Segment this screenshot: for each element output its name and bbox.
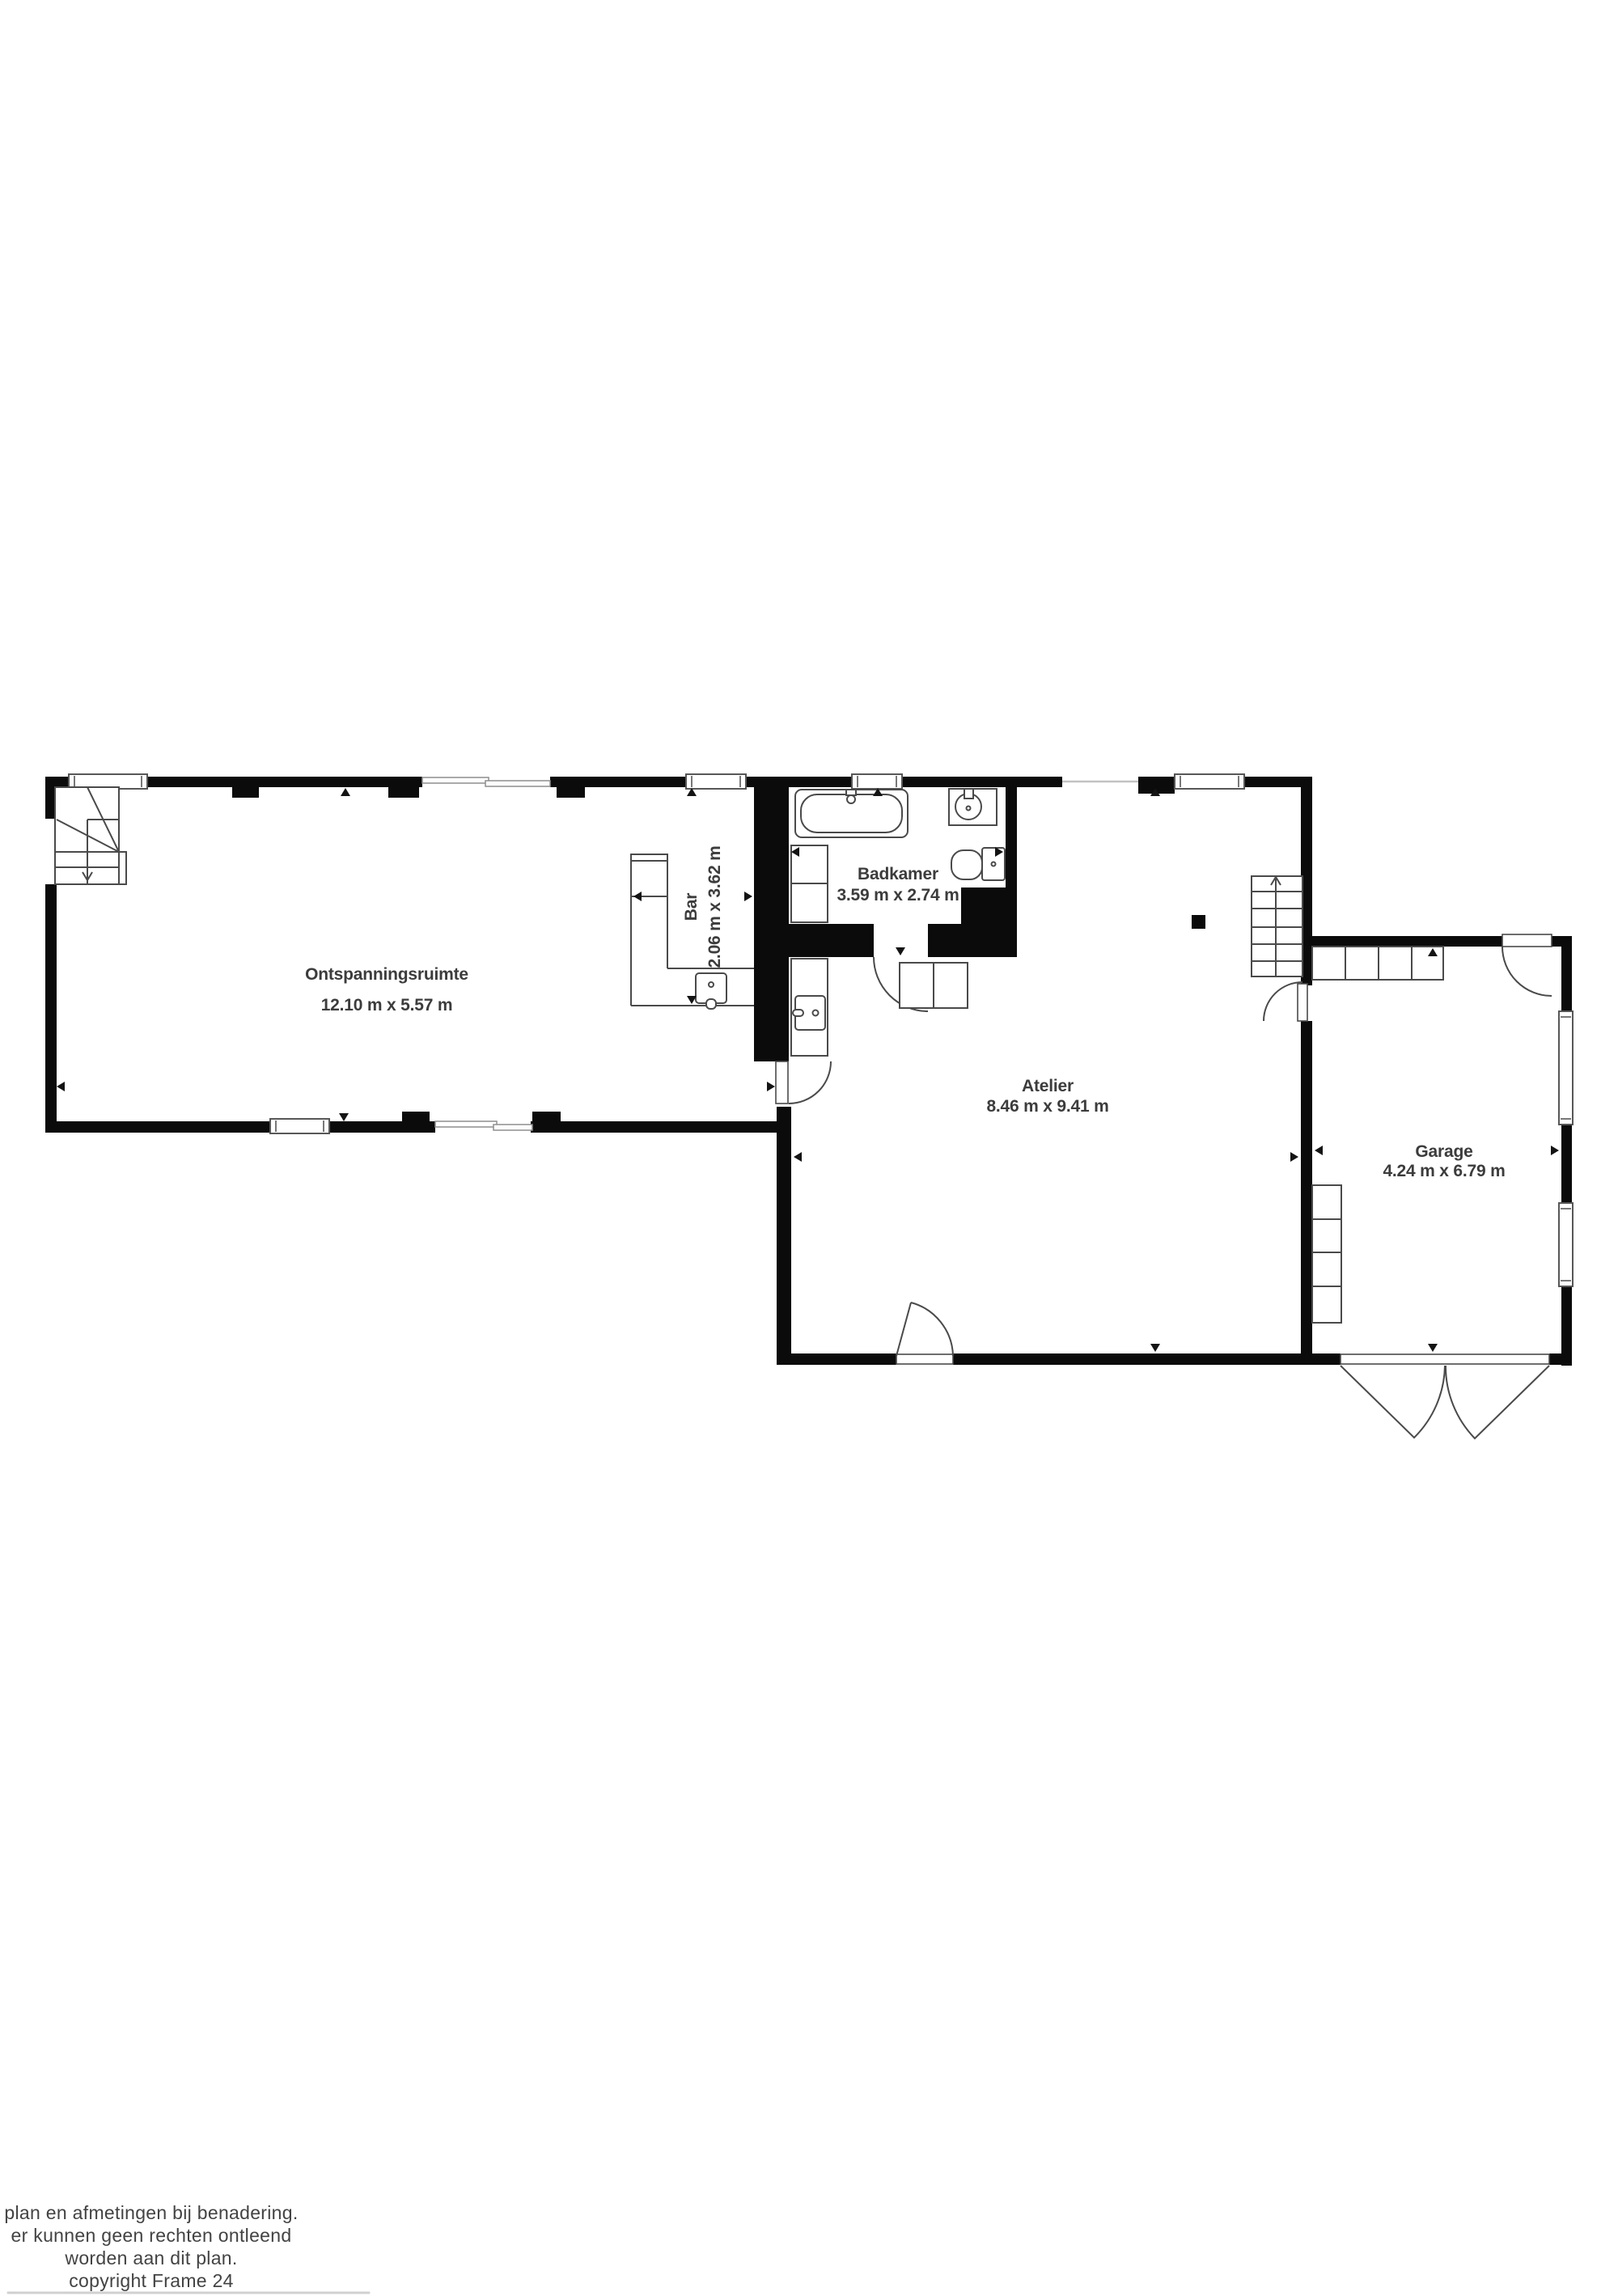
room-dims-bar: 2.06 m x 3.62 m <box>705 845 724 968</box>
wall-segment <box>1561 1125 1572 1203</box>
toilet-bowl <box>951 850 982 879</box>
wall-segment <box>953 1353 1302 1365</box>
dim-arrow-down <box>1150 1344 1160 1352</box>
disclaimer-line-2: er kunnen geen rechten ontleend <box>11 2225 292 2246</box>
bathtub-faucet <box>846 790 856 795</box>
staircase-straight <box>1252 876 1302 976</box>
window <box>1175 774 1244 789</box>
wall-segment <box>1006 787 1017 887</box>
dim-arrow-right <box>1551 1146 1559 1155</box>
disclaimer-line-3: worden aan dit plan. <box>64 2247 237 2268</box>
wall-segment <box>789 777 852 787</box>
wall-pillar-stub <box>557 787 585 798</box>
sliding-glass <box>422 777 489 783</box>
wall-segment <box>1302 1353 1341 1365</box>
wall-pillar-stub <box>388 787 419 798</box>
room-dims-garage: 4.24 m x 6.79 m <box>1383 1162 1505 1180</box>
room-label-bar: Bar <box>682 893 701 921</box>
room-labels: Ontspanningsruimte 12.10 m x 5.57 m Bar … <box>305 845 1505 1180</box>
door-swing-arc <box>911 1303 953 1356</box>
wall-segment <box>45 884 57 1133</box>
wall-segment <box>789 924 874 957</box>
room-label-ontspanningsruimte: Ontspanningsruimte <box>305 965 468 984</box>
sliding-glass <box>435 1121 497 1127</box>
wall-segment <box>754 786 789 1061</box>
floorplan-page: Ontspanningsruimte 12.10 m x 5.57 m Bar … <box>0 0 1618 2296</box>
wall-segment <box>550 777 686 787</box>
floorplan-svg: Ontspanningsruimte 12.10 m x 5.57 m Bar … <box>0 0 1618 2296</box>
shower-cabinet <box>791 845 828 922</box>
dim-arrow-left <box>57 1082 65 1091</box>
door-leaf-line <box>896 1303 911 1356</box>
kitchen-counter <box>791 959 828 1056</box>
door-leaf <box>896 1354 953 1364</box>
dim-arrow-up <box>341 788 350 796</box>
bathtub <box>795 790 908 837</box>
wall-segment <box>961 887 1017 924</box>
door-leaf <box>1502 934 1552 947</box>
wall-segment <box>781 1353 896 1365</box>
door-swing-arc <box>1264 982 1302 1021</box>
door-swing-arc <box>789 1061 831 1104</box>
dim-arrow-right <box>744 892 752 901</box>
dim-arrow-left <box>794 1152 802 1162</box>
wall-segment <box>531 1121 791 1133</box>
door-leaf <box>776 1061 788 1104</box>
dim-arrow-left <box>1315 1146 1323 1155</box>
pillar <box>1192 915 1205 929</box>
wall-pillar-stub <box>232 787 259 798</box>
garage-cabinets-left <box>1312 1185 1341 1323</box>
kitchen-sink-faucet <box>793 1010 803 1016</box>
door-leaf <box>1298 984 1307 1021</box>
wall-segment <box>329 1121 435 1133</box>
garage-door-band <box>1341 1354 1549 1364</box>
garage-door-right-leaf <box>1446 1366 1549 1438</box>
wall-pillar-stub <box>532 1112 561 1121</box>
wall-segment <box>777 1107 791 1365</box>
wall-segment <box>1561 936 1572 1011</box>
sliding-glass <box>493 1125 532 1130</box>
window <box>270 1119 329 1133</box>
wall-segment <box>147 777 422 787</box>
room-label-atelier: Atelier <box>1022 1077 1074 1095</box>
disclaimer-line-4: copyright Frame 24 <box>69 2270 234 2291</box>
wall-segment <box>1312 936 1502 947</box>
dim-arrow-down <box>896 947 905 955</box>
room-label-garage: Garage <box>1415 1142 1472 1161</box>
garage-door-left-leaf <box>1341 1366 1445 1438</box>
stairs-outline <box>119 852 126 884</box>
staircase-winder <box>55 787 126 884</box>
wall-segment <box>1549 1353 1572 1365</box>
wall-segment <box>928 924 1017 957</box>
sink-faucet <box>964 789 973 799</box>
cabinet-outline <box>1312 1185 1341 1323</box>
door-swing-arc <box>1502 947 1552 996</box>
sliding-glass <box>485 781 550 786</box>
window <box>852 774 902 789</box>
window <box>686 774 746 789</box>
disclaimer-line-1: plan en afmetingen bij benadering. <box>4 2202 298 2223</box>
window <box>1559 1203 1573 1286</box>
base-cabinets <box>900 963 968 1008</box>
dim-arrow-right <box>767 1082 775 1091</box>
dim-arrow-right <box>1290 1152 1298 1162</box>
wall-pillar-stub <box>402 1112 430 1121</box>
room-dims-atelier: 8.46 m x 9.41 m <box>986 1097 1108 1116</box>
wall-segment <box>902 777 1062 787</box>
bar-counter <box>631 854 754 1009</box>
window <box>1559 1011 1573 1125</box>
room-dims-ontspanningsruimte: 12.10 m x 5.57 m <box>321 996 453 1015</box>
wall-segment <box>45 777 70 788</box>
bathtub-inner <box>801 794 902 832</box>
wall-segment <box>1301 1021 1312 1353</box>
garage-cabinets-top <box>1312 947 1443 980</box>
wall-segment <box>45 1121 270 1133</box>
dim-arrow-down <box>1428 1344 1438 1352</box>
room-dims-badkamer: 3.59 m x 2.74 m <box>837 886 959 904</box>
bar-sink-faucet <box>706 999 716 1009</box>
footer-disclaimer: plan en afmetingen bij benadering. er ku… <box>4 2202 369 2293</box>
room-label-badkamer: Badkamer <box>858 865 938 883</box>
bathroom-sink <box>949 789 997 825</box>
dim-arrow-down <box>339 1113 349 1121</box>
